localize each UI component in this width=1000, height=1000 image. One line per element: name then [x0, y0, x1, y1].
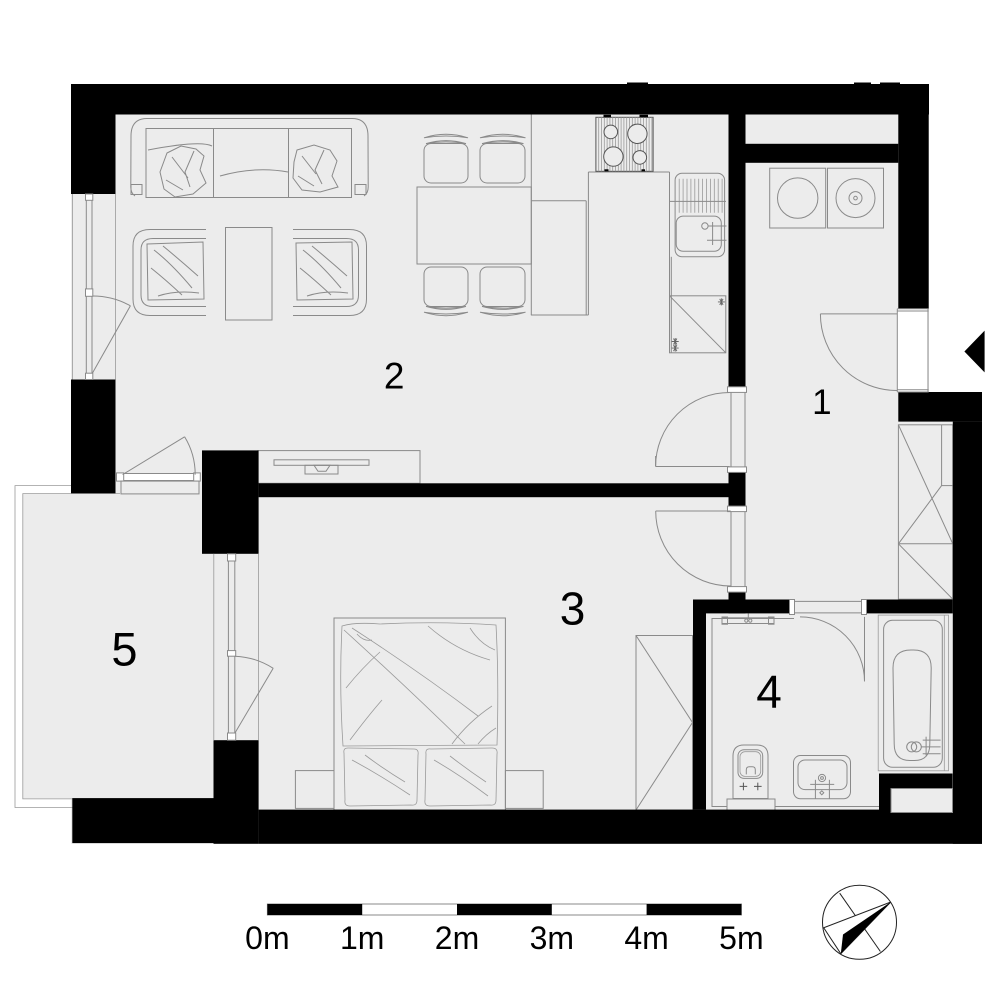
svg-text:5m: 5m [719, 920, 763, 956]
svg-text:3m: 3m [530, 920, 574, 956]
svg-text:3: 3 [560, 583, 586, 635]
svg-text:0m: 0m [245, 920, 289, 956]
svg-text:1m: 1m [340, 920, 384, 956]
svg-text:1: 1 [812, 383, 831, 422]
svg-text:5: 5 [111, 622, 137, 675]
svg-text:2m: 2m [435, 920, 479, 956]
svg-text:4: 4 [756, 666, 782, 718]
svg-text:4m: 4m [624, 920, 668, 956]
svg-text:2: 2 [384, 356, 405, 397]
